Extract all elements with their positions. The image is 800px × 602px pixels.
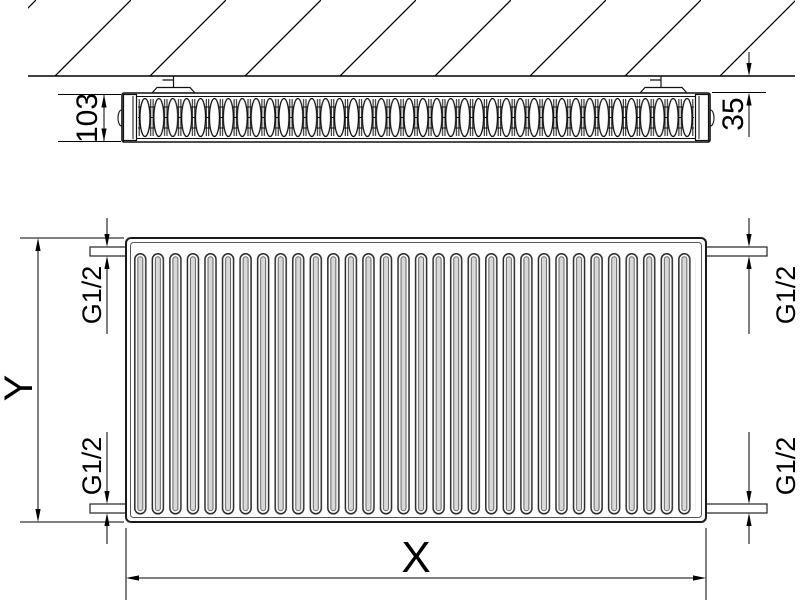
arrow-up-icon <box>746 513 751 526</box>
connection-label-top-left: G1/2 <box>77 266 107 325</box>
arrow-left-icon <box>126 575 139 580</box>
arrow-down-icon <box>104 234 109 247</box>
drawing-canvas: 103 35 Y X <box>0 0 800 602</box>
arrow-up-icon <box>746 256 751 269</box>
front-fin-pattern <box>134 253 696 515</box>
arrow-up-icon <box>104 513 109 526</box>
height-label: Y <box>0 375 41 402</box>
connection-label-top-right: G1/2 <box>771 266 800 325</box>
dimension-connection-bottom-right: G1/2 <box>746 432 800 544</box>
arrow-down-icon <box>35 509 40 522</box>
radiator-top-view <box>118 76 714 142</box>
radiator-technical-drawing: 103 35 Y X <box>0 0 800 602</box>
connection-label-bottom-left: G1/2 <box>77 437 107 496</box>
end-cap-left <box>124 95 137 141</box>
arrow-down-icon <box>746 234 751 247</box>
depth-label: 103 <box>71 93 104 143</box>
radiator-front-view <box>90 238 767 522</box>
connection-label-bottom-right: G1/2 <box>771 437 800 496</box>
width-label: X <box>401 533 430 582</box>
end-cap-right <box>696 95 709 141</box>
arrow-right-icon <box>693 575 706 580</box>
dimension-connection-top-right: G1/2 <box>746 218 800 334</box>
wall-bracket-right <box>640 76 687 93</box>
wall-section <box>28 0 795 76</box>
dimension-connection-bottom-left: G1/2 <box>77 432 110 544</box>
connection-stub-top-right <box>705 247 767 256</box>
wall-gap-label: 35 <box>717 97 750 130</box>
connection-stub-top-left <box>90 247 127 256</box>
dimension-depth: 103 <box>58 93 121 143</box>
arrow-down-icon <box>746 491 751 504</box>
top-view-fin-pattern <box>138 97 694 138</box>
connection-stub-bottom-right <box>705 504 767 513</box>
wall-bracket-left <box>152 76 195 93</box>
wall-hatch-area <box>28 0 795 76</box>
connection-stub-bottom-left <box>90 504 127 513</box>
dimension-width: X <box>126 528 706 600</box>
arrow-up-icon <box>35 238 40 251</box>
dimension-connection-top-left: G1/2 <box>77 218 110 334</box>
